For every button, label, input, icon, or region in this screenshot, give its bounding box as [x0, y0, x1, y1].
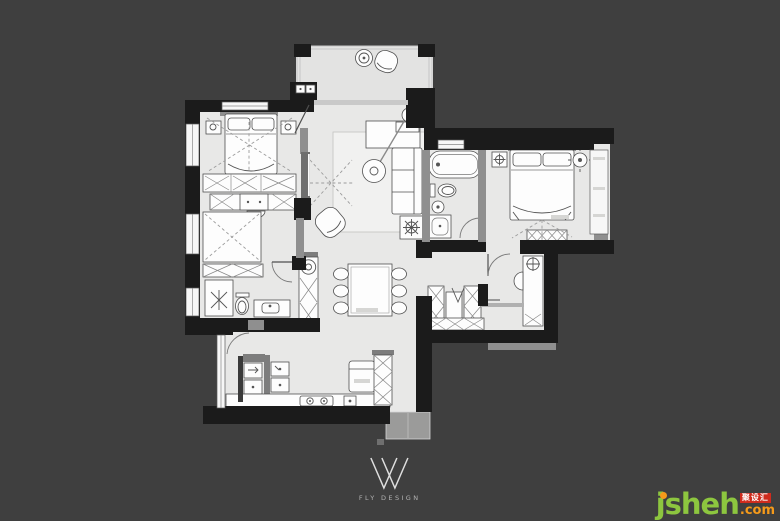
- nightstand: [206, 121, 221, 134]
- bench: [446, 292, 462, 320]
- sofa: [392, 148, 422, 214]
- coffee-table: [363, 160, 386, 183]
- pillow: [252, 118, 274, 130]
- bath-vanity: [429, 215, 451, 238]
- closet-hatch: [203, 264, 263, 277]
- shoe-cabinet-hatch: [428, 286, 484, 330]
- fly-design-logo: FLY DESIGN: [359, 456, 421, 502]
- j-dot: [660, 492, 667, 499]
- entry-threshold: [482, 303, 524, 307]
- fly-design-monogram: [367, 456, 413, 490]
- plant-table: [400, 216, 423, 239]
- service-balcony-step: [377, 439, 384, 445]
- toilet: [236, 298, 249, 315]
- cabinet: [244, 363, 262, 378]
- brand-name: FLY DESIGN: [359, 494, 421, 502]
- stove: [300, 396, 333, 406]
- tall-cabinet-hatch: [372, 350, 394, 405]
- dining-area: [334, 264, 407, 316]
- balcony-sill: [314, 100, 408, 105]
- toilet-tank: [430, 184, 435, 197]
- door-threshold: [248, 320, 264, 330]
- tv-screen: [308, 154, 310, 196]
- toilet: [438, 184, 456, 197]
- watermark-tld: .com: [740, 504, 775, 517]
- toilet-tank: [236, 293, 249, 297]
- exterior-step: [488, 343, 556, 350]
- low-closet-hatch: [527, 230, 567, 241]
- bay-window: [590, 150, 608, 234]
- watermark-site-name: jsheh: [656, 487, 739, 521]
- nightstand: [281, 121, 296, 134]
- nightstand-flower: [492, 152, 507, 167]
- floor-plan: [0, 0, 780, 520]
- dresser: [240, 194, 268, 210]
- wardrobe-hatch: [203, 174, 296, 192]
- pillow: [543, 153, 571, 166]
- fridge: [349, 361, 375, 392]
- jsheh-watermark: jsheh 聚设汇 .com: [656, 490, 775, 519]
- watermark-badge: 聚设汇: [740, 493, 771, 503]
- pillow: [228, 118, 250, 130]
- sink-basin: [262, 303, 279, 313]
- pillow: [513, 153, 541, 166]
